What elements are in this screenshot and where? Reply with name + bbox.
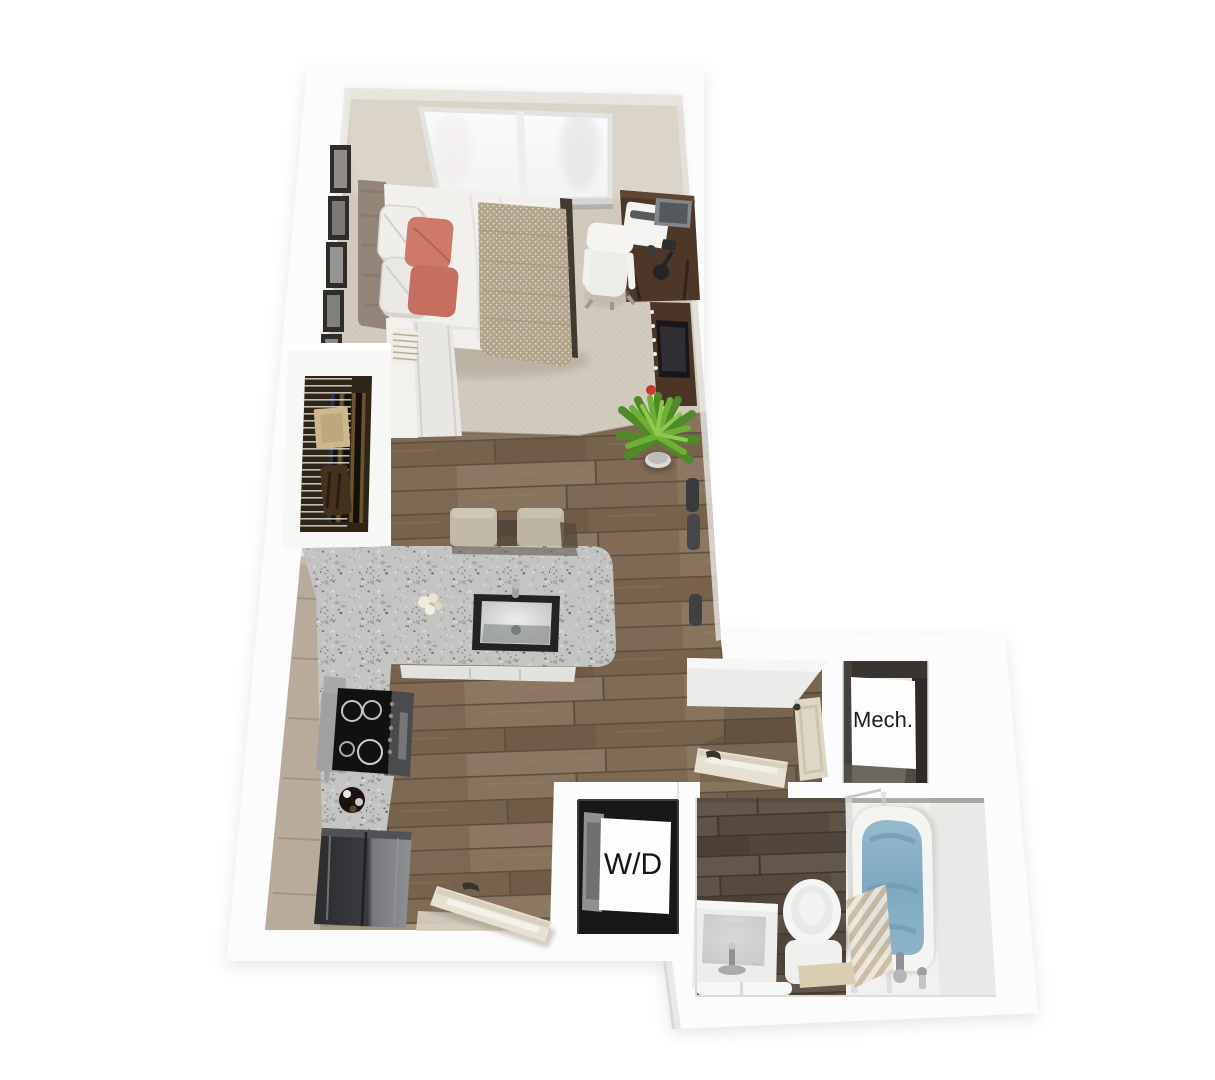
svg-text:Mech.: Mech. xyxy=(853,707,913,732)
svg-text:W/D: W/D xyxy=(604,848,662,881)
